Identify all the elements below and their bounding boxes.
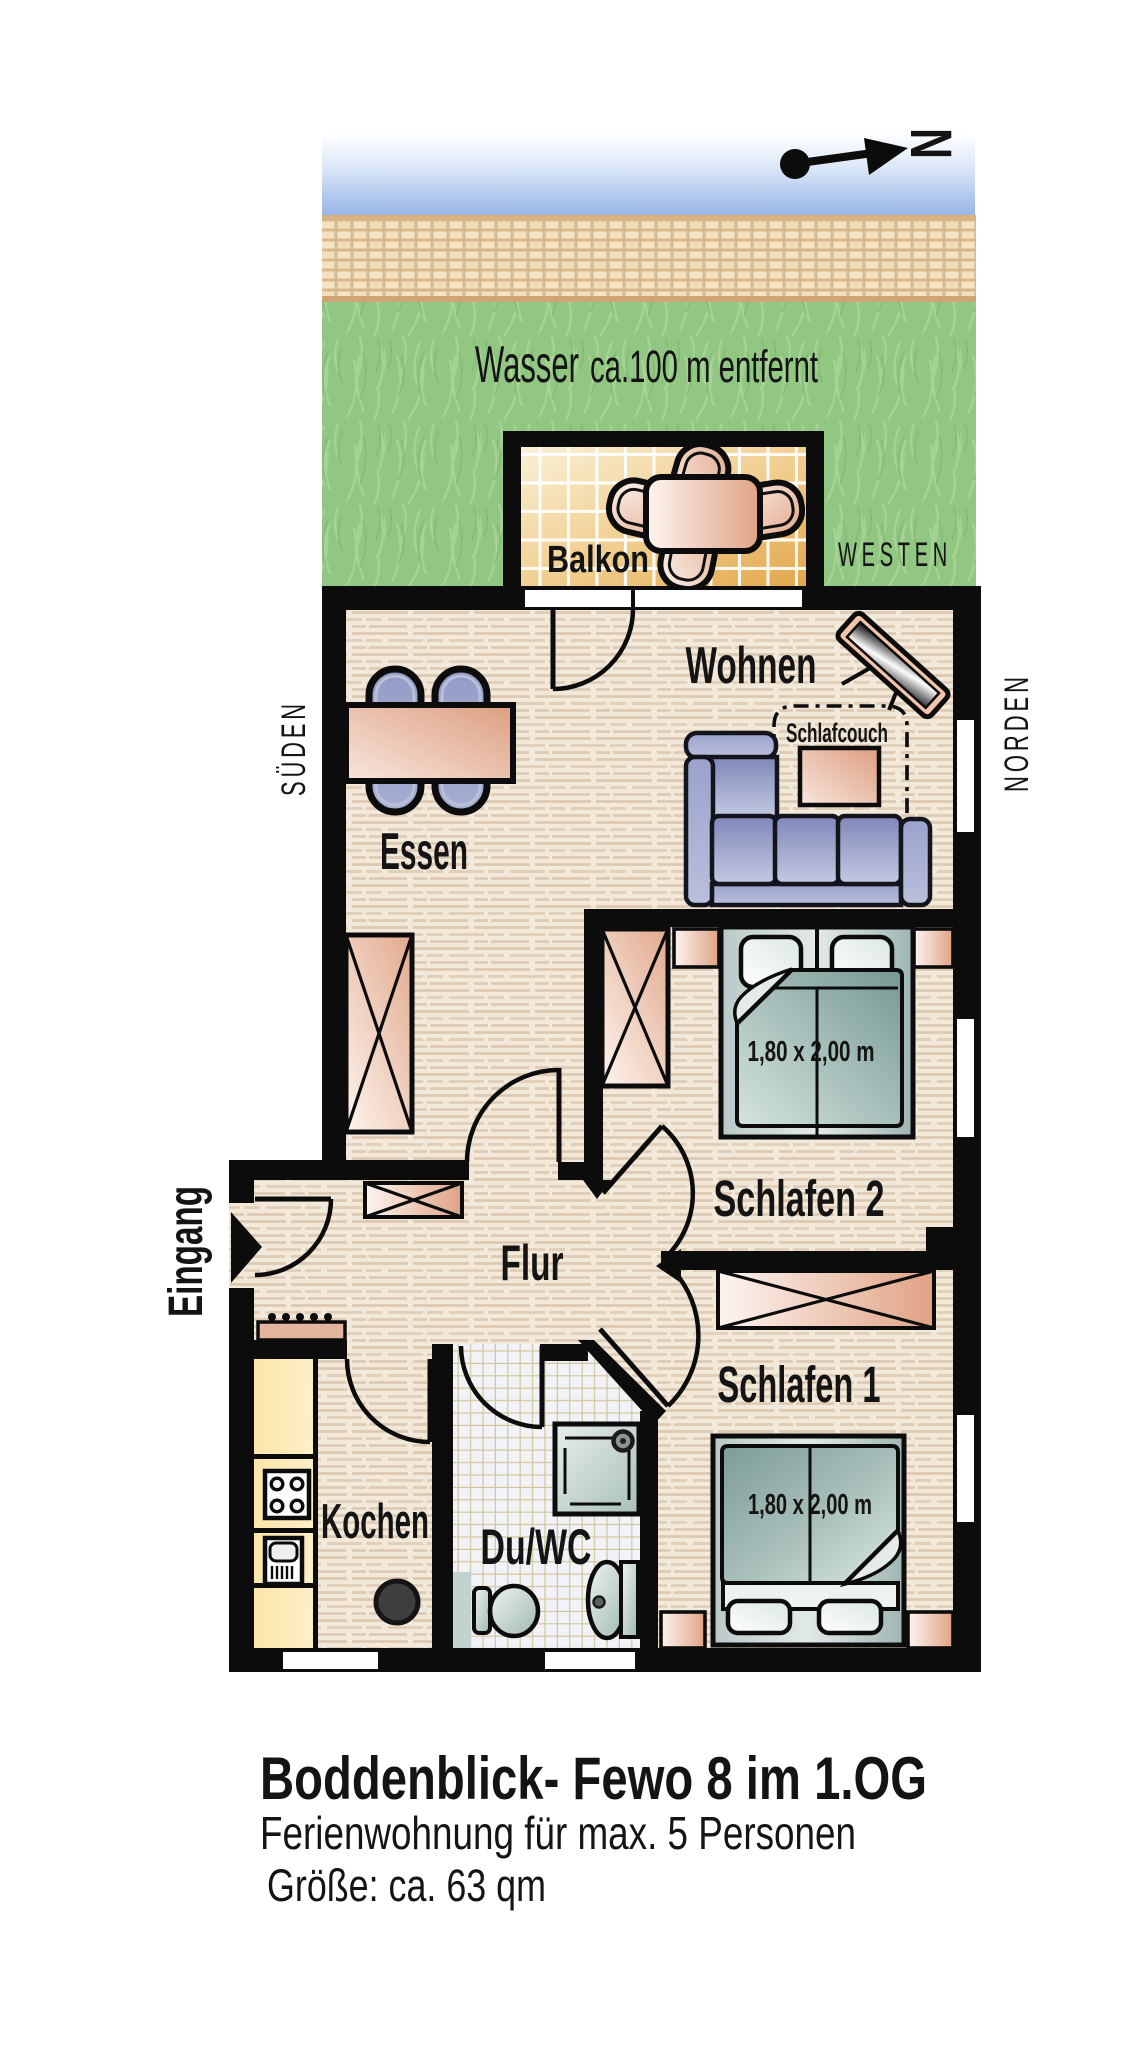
svg-text:NORDEN: NORDEN [998,673,1036,792]
svg-text:Essen: Essen [380,823,468,881]
svg-text:1,80 x 2,00 m: 1,80 x 2,00 m [748,1489,872,1521]
svg-text:Kochen: Kochen [321,1495,429,1549]
svg-text:Schlafen 1: Schlafen 1 [718,1356,881,1413]
svg-text:Wasser: Wasser [475,336,579,394]
svg-text:Größe: ca. 63 qm: Größe: ca. 63 qm [267,1860,546,1911]
svg-text:Wohnen: Wohnen [686,637,817,695]
svg-text:Boddenblick- Fewo 8 im 1.OG: Boddenblick- Fewo 8 im 1.OG [260,1745,927,1812]
svg-text:SÜDEN: SÜDEN [275,700,313,796]
svg-text:Ferienwohnung für max. 5 Perso: Ferienwohnung für max. 5 Personen [260,1807,856,1859]
svg-text:Schlafen 2: Schlafen 2 [714,1170,885,1227]
svg-text:Flur: Flur [501,1235,564,1291]
svg-text:WESTEN: WESTEN [838,536,952,574]
svg-text:Eingang: Eingang [160,1186,213,1317]
svg-text:N: N [898,128,963,159]
svg-text:Balkon: Balkon [547,539,649,581]
svg-text:Du/WC: Du/WC [481,1519,592,1575]
svg-text:1,80 x 2,00 m: 1,80 x 2,00 m [748,1036,875,1068]
svg-text:Schlafcouch: Schlafcouch [786,718,888,748]
svg-text:ca.100 m entfernt: ca.100 m entfernt [590,341,818,392]
